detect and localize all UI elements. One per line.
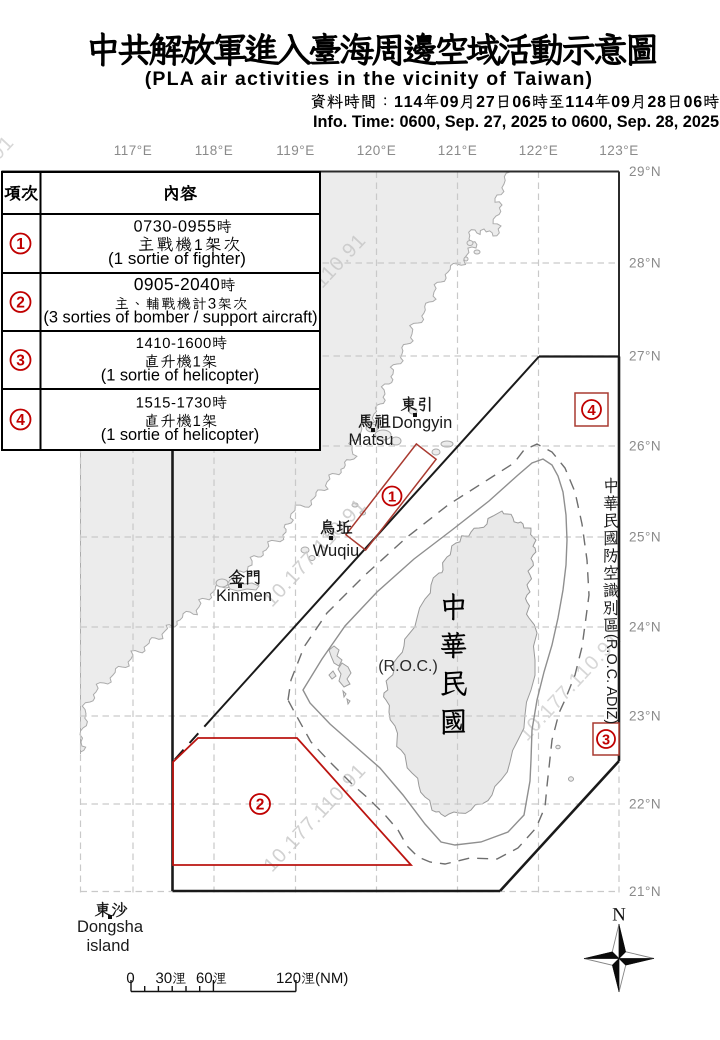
svg-text:2: 2 bbox=[256, 797, 265, 814]
svg-text:123°E: 123°E bbox=[599, 143, 638, 158]
svg-text:(R.O.C. ADIZ): (R.O.C. ADIZ) bbox=[603, 634, 619, 724]
svg-text:4: 4 bbox=[587, 402, 596, 419]
svg-text:122°E: 122°E bbox=[519, 143, 558, 158]
svg-text:1: 1 bbox=[16, 236, 25, 253]
svg-text:25°N: 25°N bbox=[629, 530, 661, 545]
svg-text:Dongsha: Dongsha bbox=[77, 918, 144, 936]
svg-text:10.177.110.91: 10.177.110.91 bbox=[260, 759, 371, 876]
svg-text:120°E: 120°E bbox=[357, 143, 396, 158]
svg-text:Dongyin: Dongyin bbox=[392, 414, 453, 432]
svg-text:28°N: 28°N bbox=[629, 256, 661, 271]
svg-text:(3 sorties of bomber / support: (3 sorties of bomber / support aircraft) bbox=[43, 309, 317, 327]
svg-text:Wuqiu: Wuqiu bbox=[313, 542, 359, 560]
svg-text:118°E: 118°E bbox=[195, 143, 233, 158]
svg-text:(PLA air activities in the vic: (PLA air activities in the vicinity of T… bbox=[145, 68, 594, 90]
svg-text:23°N: 23°N bbox=[629, 709, 661, 724]
svg-text:27°N: 27°N bbox=[629, 349, 661, 364]
svg-text:119°E: 119°E bbox=[276, 143, 314, 158]
svg-text:2: 2 bbox=[16, 295, 25, 312]
svg-text:(1 sortie of fighter): (1 sortie of fighter) bbox=[108, 249, 246, 268]
svg-text:3: 3 bbox=[602, 733, 610, 749]
svg-text:(R.O.C.): (R.O.C.) bbox=[378, 658, 438, 675]
svg-text:22°N: 22°N bbox=[629, 797, 661, 812]
svg-text:Matsu: Matsu bbox=[349, 431, 394, 449]
svg-text:29°N: 29°N bbox=[629, 164, 661, 179]
svg-text:(1 sortie of helicopter): (1 sortie of helicopter) bbox=[101, 426, 260, 444]
svg-text:island: island bbox=[86, 937, 129, 955]
svg-text:Kinmen: Kinmen bbox=[216, 587, 272, 605]
svg-text:4: 4 bbox=[16, 412, 25, 429]
svg-text:1: 1 bbox=[388, 489, 396, 506]
svg-text:117°E: 117°E bbox=[114, 143, 152, 158]
svg-text:(1 sortie of helicopter): (1 sortie of helicopter) bbox=[101, 367, 260, 385]
svg-text:Info. Time: 0600, Sep. 27, 202: Info. Time: 0600, Sep. 27, 2025 to 0600,… bbox=[313, 113, 719, 131]
svg-text:26°N: 26°N bbox=[629, 439, 661, 454]
svg-text:21°N: 21°N bbox=[629, 884, 661, 899]
svg-text:121°E: 121°E bbox=[438, 143, 477, 158]
svg-text:24°N: 24°N bbox=[629, 620, 661, 635]
svg-text:3: 3 bbox=[16, 353, 25, 370]
